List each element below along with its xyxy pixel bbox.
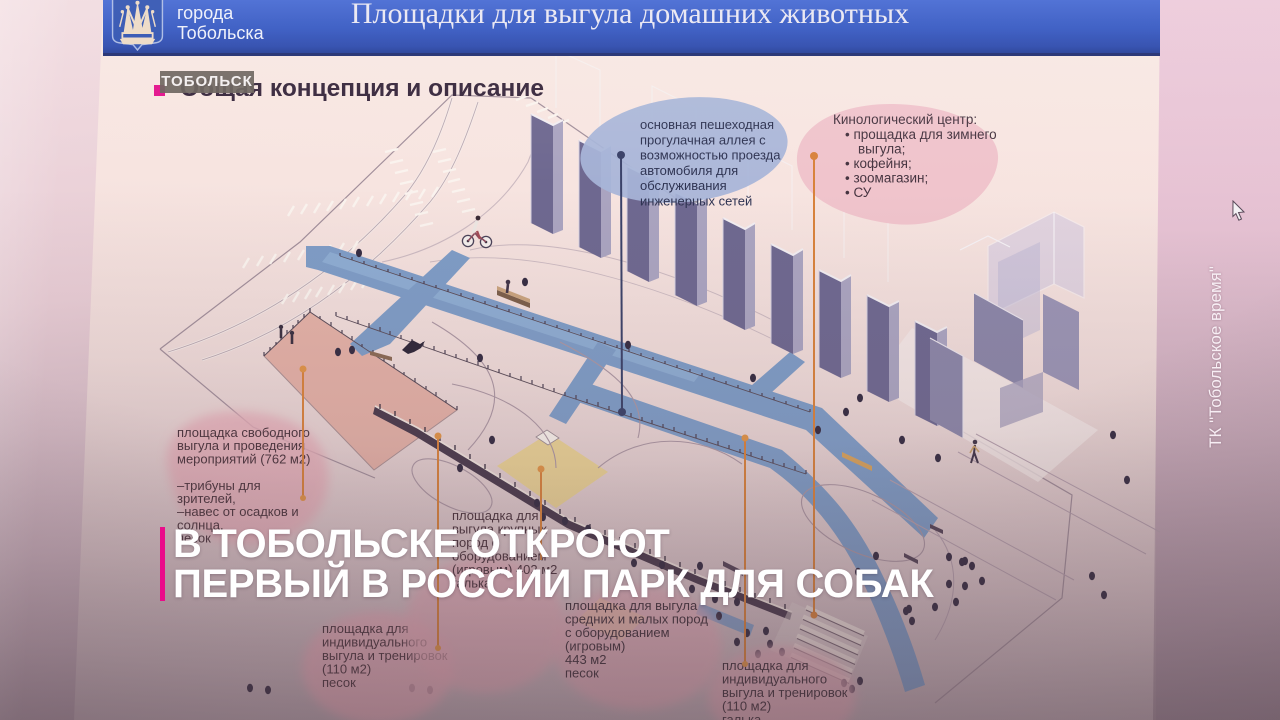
svg-text:Кинологический центр:: Кинологический центр: (833, 112, 977, 127)
